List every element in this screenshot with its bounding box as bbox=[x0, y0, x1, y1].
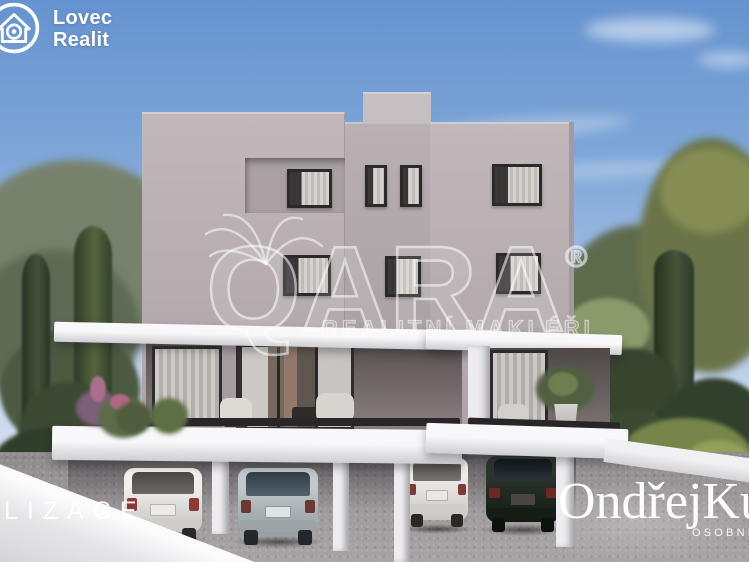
house-lens-icon bbox=[0, 1, 41, 55]
car-dark-sedan bbox=[486, 452, 560, 536]
qara-tagline: REALITNÍ MAKLÉŘI bbox=[322, 316, 594, 342]
registered-mark: ® bbox=[565, 241, 587, 274]
agent-subtitle: OSOBNÍ M bbox=[692, 527, 749, 539]
taillight bbox=[189, 498, 199, 511]
carport-pillar bbox=[212, 460, 229, 534]
rear-window bbox=[494, 459, 552, 481]
rear-window bbox=[246, 472, 310, 496]
wheel bbox=[541, 518, 554, 532]
tree-foliage bbox=[660, 148, 749, 233]
taillight bbox=[458, 484, 466, 495]
taillight bbox=[241, 500, 251, 513]
taillight bbox=[489, 488, 500, 498]
license-plate bbox=[150, 504, 176, 516]
architectural-render: Lovec Realit QARA® REALITNÍ MAKLÉŘI LIZA… bbox=[0, 0, 749, 562]
window bbox=[365, 165, 387, 207]
logo-line2: Realit bbox=[53, 29, 112, 51]
roof-parapet bbox=[363, 92, 431, 124]
wheel bbox=[298, 530, 312, 545]
caption-lizace: LIZACE bbox=[4, 497, 146, 526]
potted-plant-leaves bbox=[548, 372, 578, 396]
carport-pillar bbox=[394, 450, 410, 562]
carport-pillar bbox=[333, 455, 349, 551]
taillight bbox=[305, 500, 315, 513]
logo-line1: Lovec bbox=[53, 7, 112, 29]
license-plate bbox=[426, 490, 448, 501]
car-grey-suv bbox=[238, 460, 318, 548]
cloud bbox=[585, 18, 715, 42]
car-white-hatchback bbox=[406, 452, 468, 534]
lovec-realit-logo bbox=[0, 1, 41, 55]
balcony-railing bbox=[146, 418, 460, 426]
wheel bbox=[411, 514, 423, 527]
logo-wordmark: Lovec Realit bbox=[53, 7, 112, 52]
wheel bbox=[492, 518, 505, 532]
terrace-plant bbox=[150, 398, 188, 434]
balcony-floor-slab-right bbox=[426, 423, 629, 459]
bumper bbox=[408, 504, 466, 514]
flower-stem bbox=[90, 376, 106, 402]
window bbox=[400, 165, 422, 207]
wheel bbox=[244, 530, 258, 545]
cloud bbox=[698, 52, 749, 67]
terrace-plant bbox=[116, 402, 152, 434]
window bbox=[492, 164, 542, 206]
window bbox=[287, 169, 332, 208]
wheel bbox=[451, 514, 463, 527]
license-plate bbox=[265, 506, 291, 518]
license-plate bbox=[511, 494, 535, 505]
agent-name: OndřejKub bbox=[558, 476, 749, 528]
rear-window bbox=[132, 472, 194, 494]
